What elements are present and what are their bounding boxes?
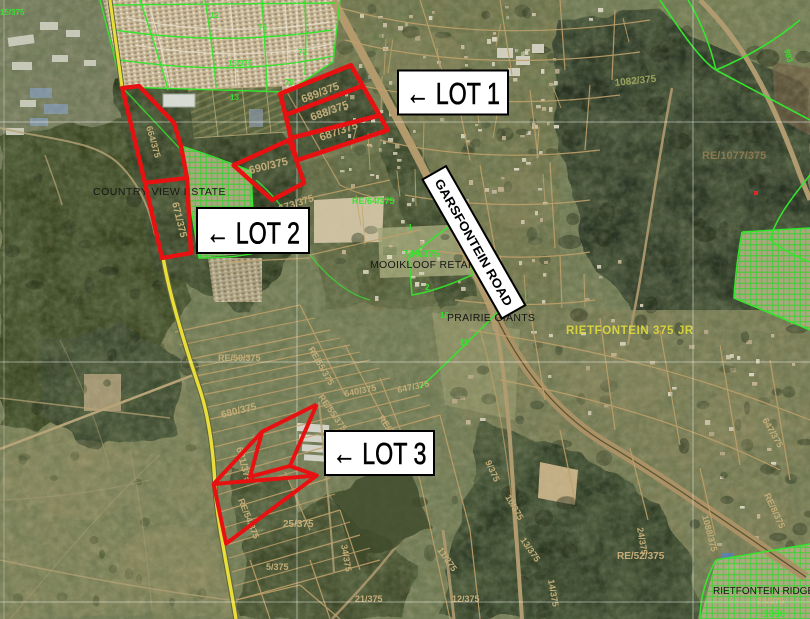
svg-text:25/375: 25/375 bbox=[283, 519, 314, 530]
svg-text:RIETFONTEIN 375 JR: RIETFONTEIN 375 JR bbox=[566, 325, 694, 337]
svg-text:COUNTRY VIEW ESTATE: COUNTRY VIEW ESTATE bbox=[93, 186, 226, 198]
svg-text:5/375: 5/375 bbox=[266, 562, 289, 572]
svg-text:25/375: 25/375 bbox=[757, 596, 785, 606]
svg-text:12: 12 bbox=[210, 11, 219, 20]
svg-text:PRAIRIE GIANTS: PRAIRIE GIANTS bbox=[447, 312, 535, 324]
svg-text:13: 13 bbox=[230, 93, 239, 102]
svg-text:RE/64/375: RE/64/375 bbox=[352, 196, 395, 206]
svg-text:RIETFONTEIN RIDGE: RIETFONTEIN RIDGE bbox=[713, 586, 810, 597]
svg-text:1: 1 bbox=[408, 223, 413, 232]
svg-text:2: 2 bbox=[425, 283, 430, 292]
svg-text:77: 77 bbox=[298, 48, 307, 57]
svg-text:1096: 1096 bbox=[763, 609, 786, 619]
svg-text:← LOT 3: ← LOT 3 bbox=[333, 436, 427, 471]
svg-text:76: 76 bbox=[258, 23, 267, 32]
svg-text:11: 11 bbox=[460, 338, 469, 347]
svg-text:RE/1077/375: RE/1077/375 bbox=[702, 150, 766, 162]
svg-text:78: 78 bbox=[285, 78, 294, 87]
svg-text:← LOT 2: ← LOT 2 bbox=[206, 216, 300, 251]
svg-text:15/375: 15/375 bbox=[228, 59, 253, 68]
svg-text:← LOT 1: ← LOT 1 bbox=[406, 76, 500, 111]
